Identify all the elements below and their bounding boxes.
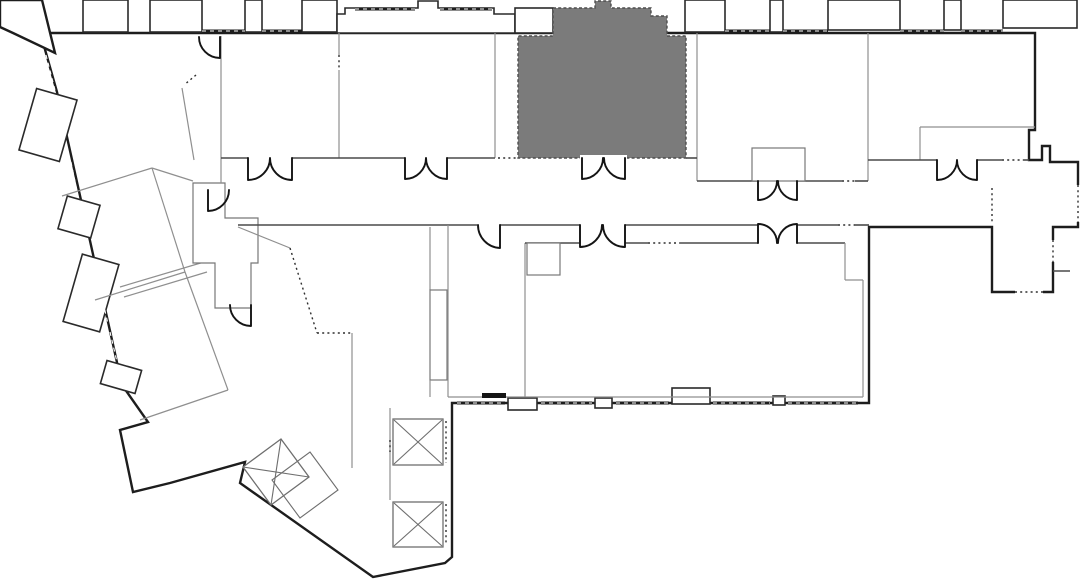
- room-protrusion: [337, 1, 515, 33]
- facade-tab-8: [944, 0, 961, 30]
- facade-tab-5: [685, 0, 725, 32]
- room-ml1-window-bar: [482, 393, 506, 398]
- roof-wedge: [0, 0, 55, 53]
- exterior-bump-1: [508, 398, 537, 410]
- highlight-shoulder: [515, 8, 553, 33]
- vestibule-top: [752, 148, 805, 181]
- facade-tab-3: [245, 0, 262, 32]
- ballroom-closet: [527, 243, 560, 275]
- shaft-room: [430, 290, 447, 380]
- facade-tab-7: [828, 0, 900, 30]
- facade-tab-9: [1003, 0, 1077, 28]
- facade-tab-2: [150, 0, 202, 32]
- bay-window-1: [19, 88, 77, 161]
- facade-tab-1: [83, 0, 128, 32]
- facade-tab-6: [770, 0, 783, 32]
- exterior-bump-3: [672, 388, 710, 404]
- floor-plan: [0, 0, 1080, 580]
- facade-tab-4: [302, 0, 337, 32]
- floor-plan-page: [0, 0, 1080, 580]
- exterior-bump-2: [595, 398, 612, 408]
